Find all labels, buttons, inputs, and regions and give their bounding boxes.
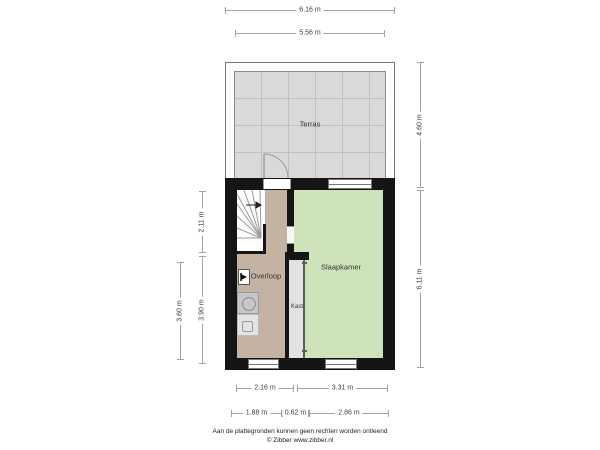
stairs-edge-wall	[237, 251, 266, 254]
stairs-edge-wall	[263, 224, 266, 254]
closet-door-tick	[302, 350, 307, 352]
floorplan-canvas: Terras Overloop Slaapkamer Kast 6.16 m 5…	[0, 0, 600, 450]
room-slaapkamer	[294, 190, 383, 358]
terrace-door-opening	[263, 179, 291, 189]
appliance-icon	[237, 314, 259, 336]
footer-disclaimer: Aan de plattegronden kunnen geen rechten…	[0, 427, 600, 436]
closet-door-tick	[302, 262, 307, 264]
room-label-slaapkamer: Slaapkamer	[321, 263, 361, 272]
dimension-right-terrace: 4.60 m	[416, 62, 425, 188]
dimension-top-outer: 6.16 m	[225, 6, 395, 15]
closet-wall	[285, 252, 309, 260]
room-label-terras: Terras	[300, 120, 321, 129]
window-icon	[325, 359, 357, 369]
room-label-kast: Kast	[291, 304, 303, 310]
dimension-left-stairs: 2.11 m	[198, 191, 207, 253]
dimension-left-lower-outer: 3.60 m	[176, 262, 185, 360]
dimension-bottom-inner-right: 3.31 m	[297, 384, 388, 393]
interior-door-opening	[287, 226, 294, 244]
room-label-overloop: Overloop	[251, 272, 281, 281]
window-icon	[248, 359, 279, 369]
dimension-bottom-outer-left: 1.88 m	[231, 409, 282, 418]
dimension-bottom-outer-right: 2.86 m	[309, 409, 389, 418]
washer-icon	[237, 292, 259, 314]
wall-fixture-icon	[238, 269, 250, 285]
dimension-bottom-inner-left: 2.16 m	[236, 384, 294, 393]
window-icon	[328, 179, 372, 189]
divider-wall	[287, 190, 294, 226]
footer-credit: © Zibber www.zibber.nl	[0, 436, 600, 445]
stairs-icon	[237, 190, 266, 254]
door-arc-icon	[263, 152, 293, 180]
dimension-left-lower-inner: 3.90 m	[198, 256, 207, 364]
dimension-bottom-outer-mid: 0.62 m	[282, 409, 309, 418]
dimension-top-inner: 5.56 m	[235, 29, 385, 38]
dimension-right-interior: 6.11 m	[416, 190, 425, 368]
